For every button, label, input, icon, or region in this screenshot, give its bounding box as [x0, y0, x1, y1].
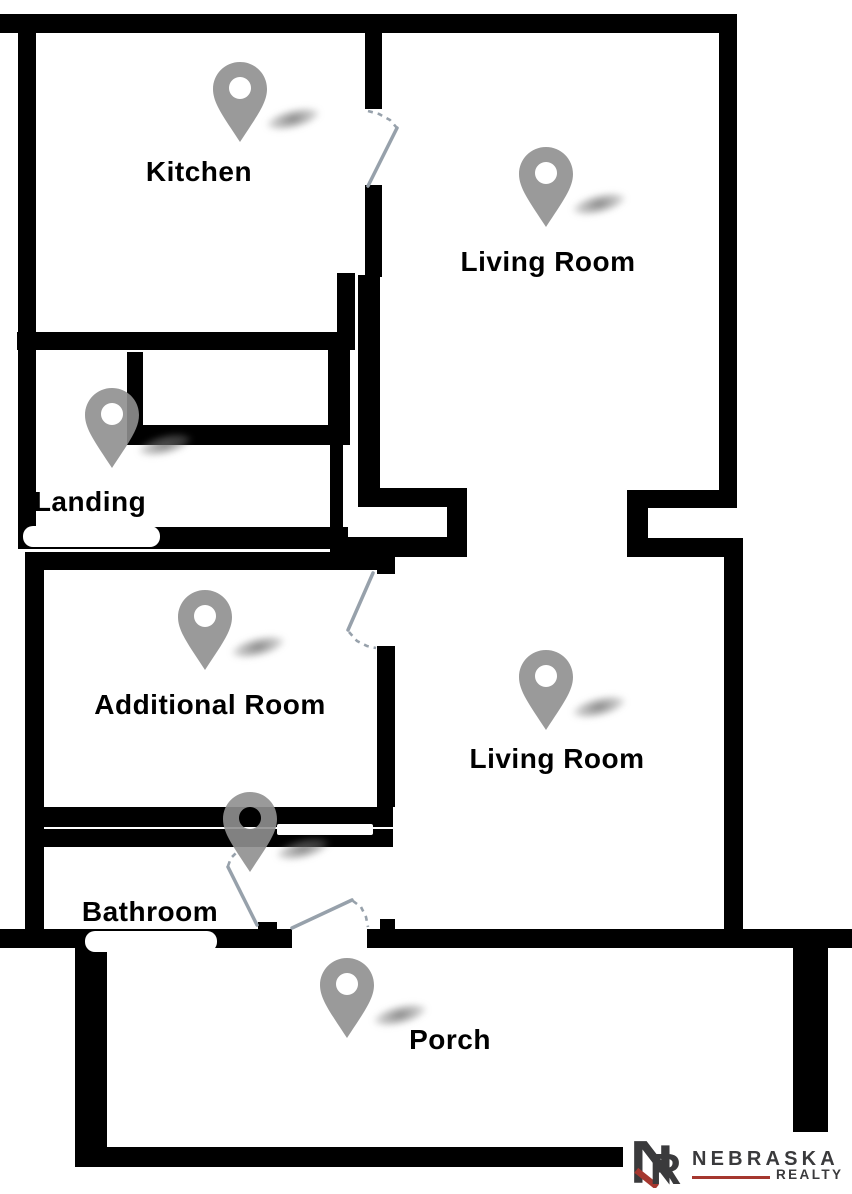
- map-pin-icon: [213, 62, 267, 142]
- additional-room-door-swing-arc: [349, 632, 376, 648]
- map-pin-shape: [223, 792, 277, 872]
- wall-segment: [365, 185, 382, 277]
- wall-segment: [793, 947, 828, 1132]
- bathroom-door-leaf: [228, 867, 257, 925]
- map-pin-icon: [223, 792, 277, 872]
- room-label: Kitchen: [146, 156, 252, 188]
- map-pin-shape: [519, 147, 573, 227]
- wall-segment: [377, 552, 395, 574]
- map-pin-shape: [213, 62, 267, 142]
- kitchen-door-leaf: [368, 128, 397, 186]
- room-label: Living Room: [469, 743, 644, 775]
- map-pin-shape: [178, 590, 232, 670]
- logo-monogram-r: R: [650, 1145, 682, 1188]
- wall-segment: [358, 275, 380, 507]
- room-label: Bathroom: [82, 896, 218, 928]
- wall-segment: [36, 552, 393, 570]
- map-pin-shape: [519, 650, 573, 730]
- floorplan: KitchenLiving RoomLandingAdditional Room…: [0, 0, 852, 1194]
- room-label: Additional Room: [94, 689, 325, 721]
- porch-door-leaf: [292, 900, 352, 928]
- wall-segment: [17, 332, 355, 350]
- wall-segment: [724, 552, 743, 935]
- logo-monogram-icon: R: [630, 1138, 682, 1188]
- wall-segment: [365, 33, 382, 109]
- wall-segment: [337, 273, 355, 350]
- wall-segment: [0, 14, 737, 33]
- additional-room-door-leaf: [348, 573, 373, 630]
- wall-segment: [367, 929, 852, 948]
- map-pin-icon: [320, 958, 374, 1038]
- nebraska-realty-logo: R NEBRASKA REALTY: [630, 1138, 842, 1190]
- map-pin-icon: [519, 650, 573, 730]
- map-pin-icon: [519, 147, 573, 227]
- map-pin-icon: [178, 590, 232, 670]
- wall-segment: [25, 552, 44, 948]
- logo-division-text: REALTY: [776, 1167, 843, 1182]
- wall-segment: [719, 33, 737, 508]
- map-pin-icon: [85, 388, 139, 468]
- wall-segment: [75, 1147, 623, 1167]
- map-pin-shape: [85, 388, 139, 468]
- wall-segment: [377, 646, 395, 807]
- doorway-opening-marker: [23, 526, 160, 547]
- porch-door-swing-arc: [353, 901, 368, 927]
- wall-segment: [18, 33, 36, 549]
- logo-red-rule: [692, 1176, 770, 1179]
- map-pin-shape: [320, 958, 374, 1038]
- room-label: Living Room: [460, 246, 635, 278]
- wall-segment: [380, 919, 395, 931]
- doorway-opening-marker: [85, 931, 217, 952]
- wall-segment: [258, 922, 277, 948]
- kitchen-door-swing-arc: [368, 111, 397, 128]
- room-label: Porch: [409, 1024, 491, 1056]
- wall-segment: [75, 948, 107, 1167]
- room-label: Landing: [34, 486, 146, 518]
